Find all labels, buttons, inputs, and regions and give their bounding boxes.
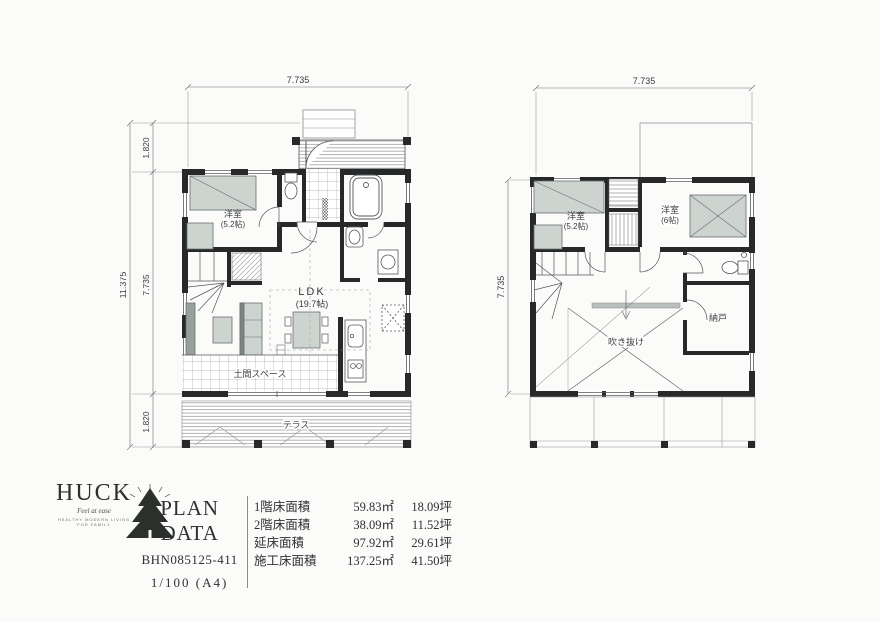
room-label-bedroom2f-a-size: (5.2帖) [564,221,589,231]
floor1-washroom [346,227,398,274]
area-sqm: 97.92㎡ [332,534,394,552]
room-label-bedroom2f-b: 洋室 [661,204,679,215]
floor2-roof-below [530,397,755,448]
area-label: 2階床面積 [254,516,332,534]
room-label-bedroom1f-size: (5.2帖) [221,219,246,229]
scanned-floorplan-sheet: 7.735 11.375 1.820 7.735 1.820 [0,0,880,622]
area-row: 2階床面積 38.09㎡ 11.52坪 [254,516,452,534]
floor1-entrance [306,169,340,220]
tv-board [186,303,195,355]
area-row: 1階床面積 59.83㎡ 18.09坪 [254,498,452,516]
area-sqm: 137.25㎡ [332,552,394,570]
area-tsubo: 11.52坪 [394,516,452,534]
floor1-dim-seg-top: 1.820 [141,137,151,159]
area-label: 1階床面積 [254,498,332,516]
floor1-stair-closet [232,253,261,280]
floor2-stairs [534,252,594,319]
floor1-kitchen [345,305,404,382]
area-table: 1階床面積 59.83㎡ 18.09坪 2階床面積 38.09㎡ 11.52坪 … [254,482,452,600]
dining-table [293,312,320,348]
area-row: 施工床面積 137.25㎡ 41.50坪 [254,552,452,570]
room-label-ldk: LDK [298,286,325,298]
floor1-toilet [285,173,297,199]
area-row: 延床面積 97.92㎡ 29.61坪 [254,534,452,552]
room-label-doma: 土間スペース [234,368,287,379]
desk [534,225,562,249]
floor2-plan: 7.735 7.735 [490,55,840,470]
floor2-doors [585,252,707,320]
room-label-storage: 納戸 [709,312,727,323]
floor1-dim-total: 11.375 [120,272,128,299]
floor2-dim-left: 7.735 [496,276,506,299]
floor2-void-handrail [592,303,680,308]
floor1-bathtub [350,175,382,219]
floor1-dim-top: 7.735 [287,75,310,85]
title-block: HUCK Feel at ease HEALTHY MODERN LIVING … [52,482,452,600]
floor1-plan: 7.735 11.375 1.820 7.735 1.820 [120,55,470,470]
floor2-roof-outline [640,123,752,177]
titleblock-divider [247,496,248,588]
floor2-toilet [722,253,748,275]
floor1-dim-seg-mid: 7.735 [141,274,151,296]
floor1-porch [292,110,411,169]
area-sqm: 59.83㎡ [332,498,394,516]
area-label: 施工床面積 [254,552,332,570]
brand-logo: HUCK Feel at ease HEALTHY MODERN LIVING … [52,482,136,600]
plan-number: BHN085125-411 [136,552,243,568]
area-sqm: 38.09㎡ [332,516,394,534]
floor1-dim-seg-bottom: 1.820 [141,411,151,433]
huck-tree-icon [94,482,206,544]
area-label: 延床面積 [254,534,332,552]
low-table [213,317,232,343]
room-label-bedroom2f-a: 洋室 [567,210,585,221]
area-tsubo: 18.09坪 [394,498,452,516]
room-label-ldk-size: (19.7帖) [296,298,329,309]
area-tsubo: 29.61坪 [394,534,452,552]
room-label-bedroom2f-b-size: (6帖) [661,215,679,225]
room-label-terrace: テラス [283,420,310,430]
room-label-void: 吹き抜け [608,336,644,347]
floor2-dim-top: 7.735 [633,76,656,86]
area-tsubo: 41.50坪 [394,552,452,570]
room-label-bedroom1f: 洋室 [224,208,242,219]
desk [187,223,213,249]
plan-scale: 1/100 (A4) [136,575,243,591]
